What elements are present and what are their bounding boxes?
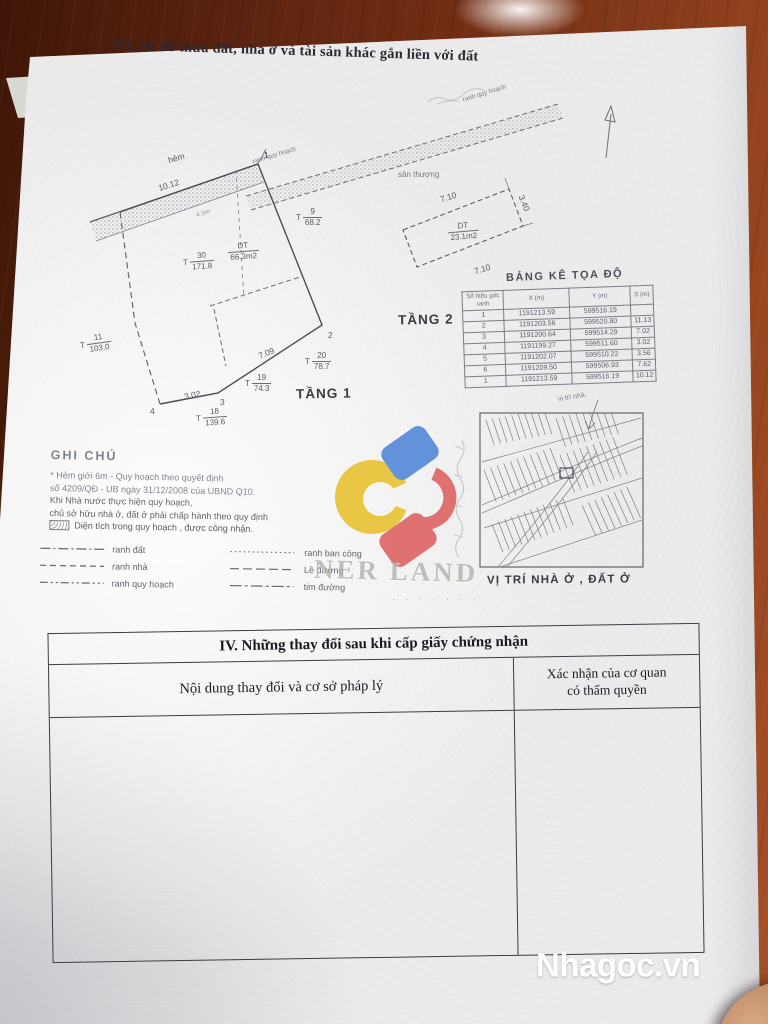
line-sample-le-duong [230, 564, 294, 573]
agency-name-watermark: NER LAND [314, 554, 479, 589]
line-sample-ranh-quy-hoach [40, 578, 104, 587]
agency-tagline-dots: · · · · · · · [392, 594, 480, 604]
corner-3: 3 [220, 397, 225, 407]
floor2-area: DT23.1m2 [447, 221, 479, 243]
terrace-label: sân thượng [398, 170, 439, 179]
floor1-label: TẦNG 1 [296, 386, 352, 402]
coordinate-table-body: 11191213.59599516.1921191203.56599520.80… [463, 304, 657, 388]
col-change-content: Nội dung thay đổi và cơ sở pháp lý [49, 658, 515, 717]
neighbor-frac-20: T2078.7 [305, 352, 331, 371]
planning-boundary-strip [246, 104, 563, 210]
neighbor-frac-9: T968.2 [296, 208, 322, 227]
line-sample-ranh-ban-cong [230, 547, 294, 556]
location-map-title: VỊ TRÍ NHÀ Ở , ĐẤT Ở [487, 573, 631, 586]
section4-table: IV. Những thay đổi sau khi cấp giấy chứn… [47, 623, 704, 963]
section4-empty-body [50, 708, 704, 962]
coord-col-s: S (m) [630, 285, 653, 305]
neighbor-frac-18: T18139.6 [195, 407, 227, 428]
floor2-label: TẦNG 2 [398, 312, 454, 328]
line-sample-ranh-nha [40, 561, 104, 570]
coordinate-table: Số hiệu góc ranh X (m) Y (m) S (m) 11191… [461, 285, 656, 389]
col-authority-confirm: Xác nhận của cơ quan có thẩm quyền [514, 655, 700, 710]
corner-4: 4 [150, 406, 155, 416]
line-sample-ranh-dat [40, 544, 104, 553]
coord-col-x: X (m) [503, 288, 569, 309]
corner-2: 2 [328, 330, 333, 340]
section4-empty-left-cell [50, 711, 519, 962]
house-number-area: T30171.8 [182, 251, 214, 272]
line-sample-tim-duong [230, 581, 294, 590]
coord-col-y: Y (m) [569, 286, 631, 307]
agency-logo-watermark [328, 418, 478, 573]
site-watermark: Nhagoc.vn [536, 945, 700, 985]
neighbor-frac-19: T1974.3 [245, 374, 271, 393]
floor1-area: DT66.3m2 [227, 241, 259, 262]
location-map [480, 400, 643, 567]
corner-1: 1 [264, 150, 269, 160]
hatch-swatch [49, 520, 69, 530]
north-arrow-icon [605, 106, 615, 158]
photo-of-land-certificate: { "document": { "section3_title": "III. … [0, 0, 768, 1024]
coord-col-corner: Số hiệu góc ranh [462, 290, 504, 310]
